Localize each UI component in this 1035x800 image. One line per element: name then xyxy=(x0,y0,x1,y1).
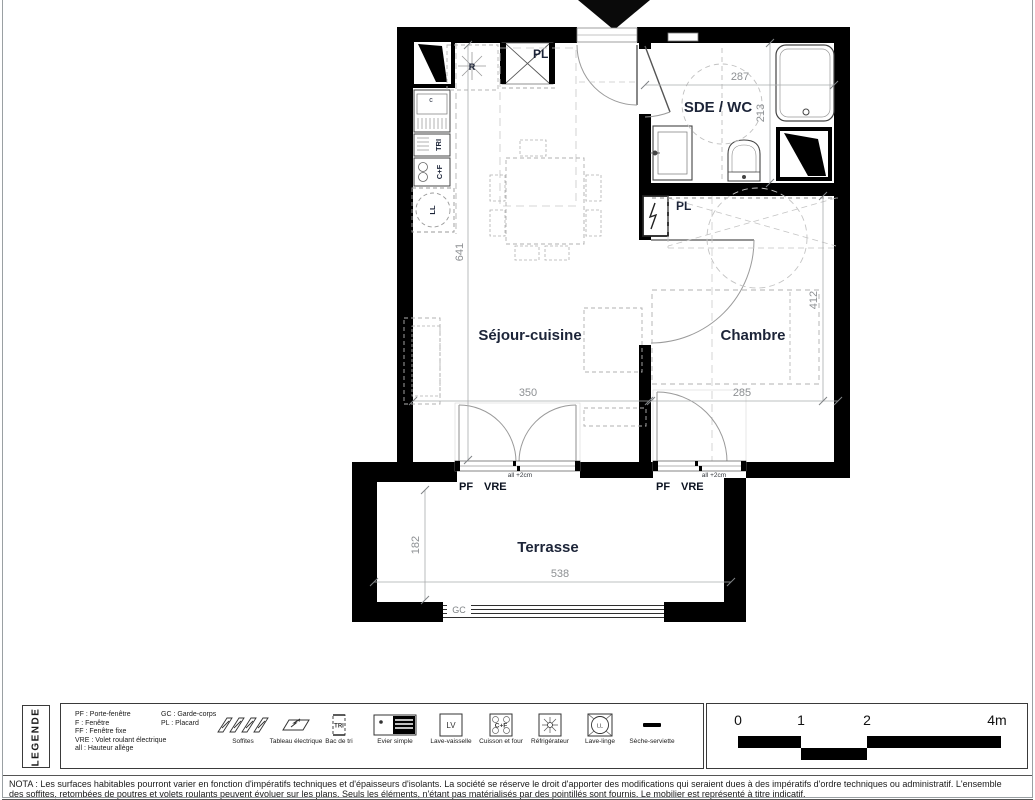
entrance-arrow-icon xyxy=(578,0,650,30)
legend-item-seche-serviette: Sèche-serviette xyxy=(624,712,680,746)
washbasin xyxy=(650,126,692,180)
abbr-pf: PF : Porte-fenêtre xyxy=(75,711,166,720)
pf-label-sejour: PF xyxy=(459,481,473,493)
scale-tick-0: 0 xyxy=(734,712,742,728)
legend-item-lave-linge: LL Lave-linge xyxy=(572,712,628,746)
turning-circle-chambre xyxy=(707,188,807,288)
soffites-icon xyxy=(215,712,271,738)
dim-sde-width: 287 xyxy=(731,71,749,83)
legend-label: Cuisson et four xyxy=(473,738,529,746)
electrical-panel xyxy=(643,196,668,236)
wall-vent-inset xyxy=(668,33,698,41)
svg-text:LV: LV xyxy=(446,721,456,730)
svg-text:LL: LL xyxy=(597,724,603,730)
dim-terrasse-width: 538 xyxy=(551,568,569,580)
dim-sejour-width: 350 xyxy=(519,387,537,399)
entry-door xyxy=(577,28,637,105)
abbr-f: F : Fenêtre xyxy=(75,720,166,729)
scale-tick-2: 2 xyxy=(863,712,871,728)
svg-text:TRI: TRI xyxy=(334,724,344,730)
gc-label: GC xyxy=(452,605,466,615)
svg-text:C+F: C+F xyxy=(495,723,507,730)
legend-item-soffites: Soffites xyxy=(215,712,271,746)
kitchen-cooktop xyxy=(414,158,450,186)
legend-label: Sèche-serviette xyxy=(624,738,680,746)
scale-segment-0-1 xyxy=(738,736,801,748)
floor-plan-svg: c TRI C+F LL R PL xyxy=(0,0,1035,700)
vre-label-chambre: VRE xyxy=(681,481,704,493)
vre-label-sejour: VRE xyxy=(484,481,507,493)
dim-chambre-width: 285 xyxy=(733,387,751,399)
allege-label-chambre: all +2cm xyxy=(702,472,726,479)
washer-icon: LL xyxy=(572,712,628,738)
duct-sde xyxy=(776,127,832,181)
abbr-vre: VRE : Volet roulant électrique xyxy=(75,737,166,746)
sheet-border-bottom xyxy=(2,797,1033,798)
nota-line1: NOTA : Les surfaces habitables pourront … xyxy=(9,779,1002,789)
room-label-chambre: Chambre xyxy=(720,327,785,344)
legend-item-bac-de-tri: TRI Bac de tri xyxy=(311,712,367,746)
legend-label: Soffites xyxy=(215,738,271,746)
legend-item-cuisson: C+F Cuisson et four xyxy=(473,712,529,746)
entry-closet-label: PL xyxy=(533,47,548,61)
dim-sde-height: 213 xyxy=(755,104,767,122)
dining-table xyxy=(490,140,601,260)
sheet-border-left xyxy=(2,0,3,798)
legend-label: Bac de tri xyxy=(311,738,367,746)
cooktop-label: C+F xyxy=(435,164,444,179)
legend-label: Réfrigérateur xyxy=(522,738,578,746)
kitchen-tri xyxy=(414,134,450,156)
room-label-sde: SDE / WC xyxy=(684,99,753,116)
legend-label: Lave-linge xyxy=(572,738,628,746)
railing xyxy=(443,606,664,618)
legend-item-evier: Evier simple xyxy=(367,712,423,746)
dishwasher-icon: LV xyxy=(423,712,479,738)
room-label-sejour: Séjour-cuisine xyxy=(478,327,581,344)
pf-label-chambre: PF xyxy=(656,481,670,493)
legend-title-box: LEGENDE xyxy=(22,705,50,768)
legend-label: Lave-vaisselle xyxy=(423,738,479,746)
legend-box: PF : Porte-fenêtre F : Fenêtre FF : Fenê… xyxy=(60,703,704,769)
washing-machine-label: LL xyxy=(428,205,437,215)
scale-tick-4m: 4m xyxy=(987,712,1006,728)
scale-segment-2-4 xyxy=(867,736,1001,748)
dim-chambre-height: 412 xyxy=(808,291,820,309)
scale-segment-1-2 xyxy=(801,748,867,760)
recycling-bin-icon: TRI xyxy=(311,712,367,738)
sink-label: c xyxy=(429,97,433,104)
allege-label-sejour: all +2cm xyxy=(508,472,532,479)
legend-item-lave-vaisselle: LV Lave-vaisselle xyxy=(423,712,479,746)
legend-title: LEGENDE xyxy=(31,707,42,766)
legend-item-refrigerateur: Réfrigérateur xyxy=(522,712,578,746)
duct-kitchen xyxy=(410,38,455,88)
abbr-gc: GC : Garde-corps xyxy=(161,711,216,720)
legend-label: Evier simple xyxy=(367,738,423,746)
toilet xyxy=(728,140,760,181)
tri-label: TRI xyxy=(434,139,443,151)
plan-sheet: c TRI C+F LL R PL xyxy=(0,0,1035,800)
pf-door-sejour xyxy=(455,403,580,471)
dim-terrasse-height: 182 xyxy=(410,536,422,554)
fridge-icon xyxy=(522,712,578,738)
room-label-terrasse: Terrasse xyxy=(517,539,578,556)
pf-door-chambre xyxy=(653,390,746,471)
scale-bar: 0 1 2 4m xyxy=(706,703,1028,769)
legend-abbreviations-col1: PF : Porte-fenêtre F : Fenêtre FF : Fenê… xyxy=(75,711,166,754)
abbr-pl: PL : Placard xyxy=(161,720,216,729)
dim-sejour-height: 641 xyxy=(454,243,466,261)
abbr-all: all : Hauteur allège xyxy=(75,745,166,754)
sheet-border-right xyxy=(1032,0,1033,798)
shower-tray xyxy=(776,45,834,121)
sideboard xyxy=(584,308,646,426)
oven-icon: C+F xyxy=(473,712,529,738)
fridge-label: R xyxy=(469,62,476,72)
sink-icon xyxy=(367,712,423,738)
legend-abbreviations-col2: GC : Garde-corps PL : Placard xyxy=(161,711,216,728)
abbr-ff: FF : Fenêtre fixe xyxy=(75,728,166,737)
towel-dryer-icon xyxy=(624,712,680,738)
scale-tick-1: 1 xyxy=(797,712,805,728)
